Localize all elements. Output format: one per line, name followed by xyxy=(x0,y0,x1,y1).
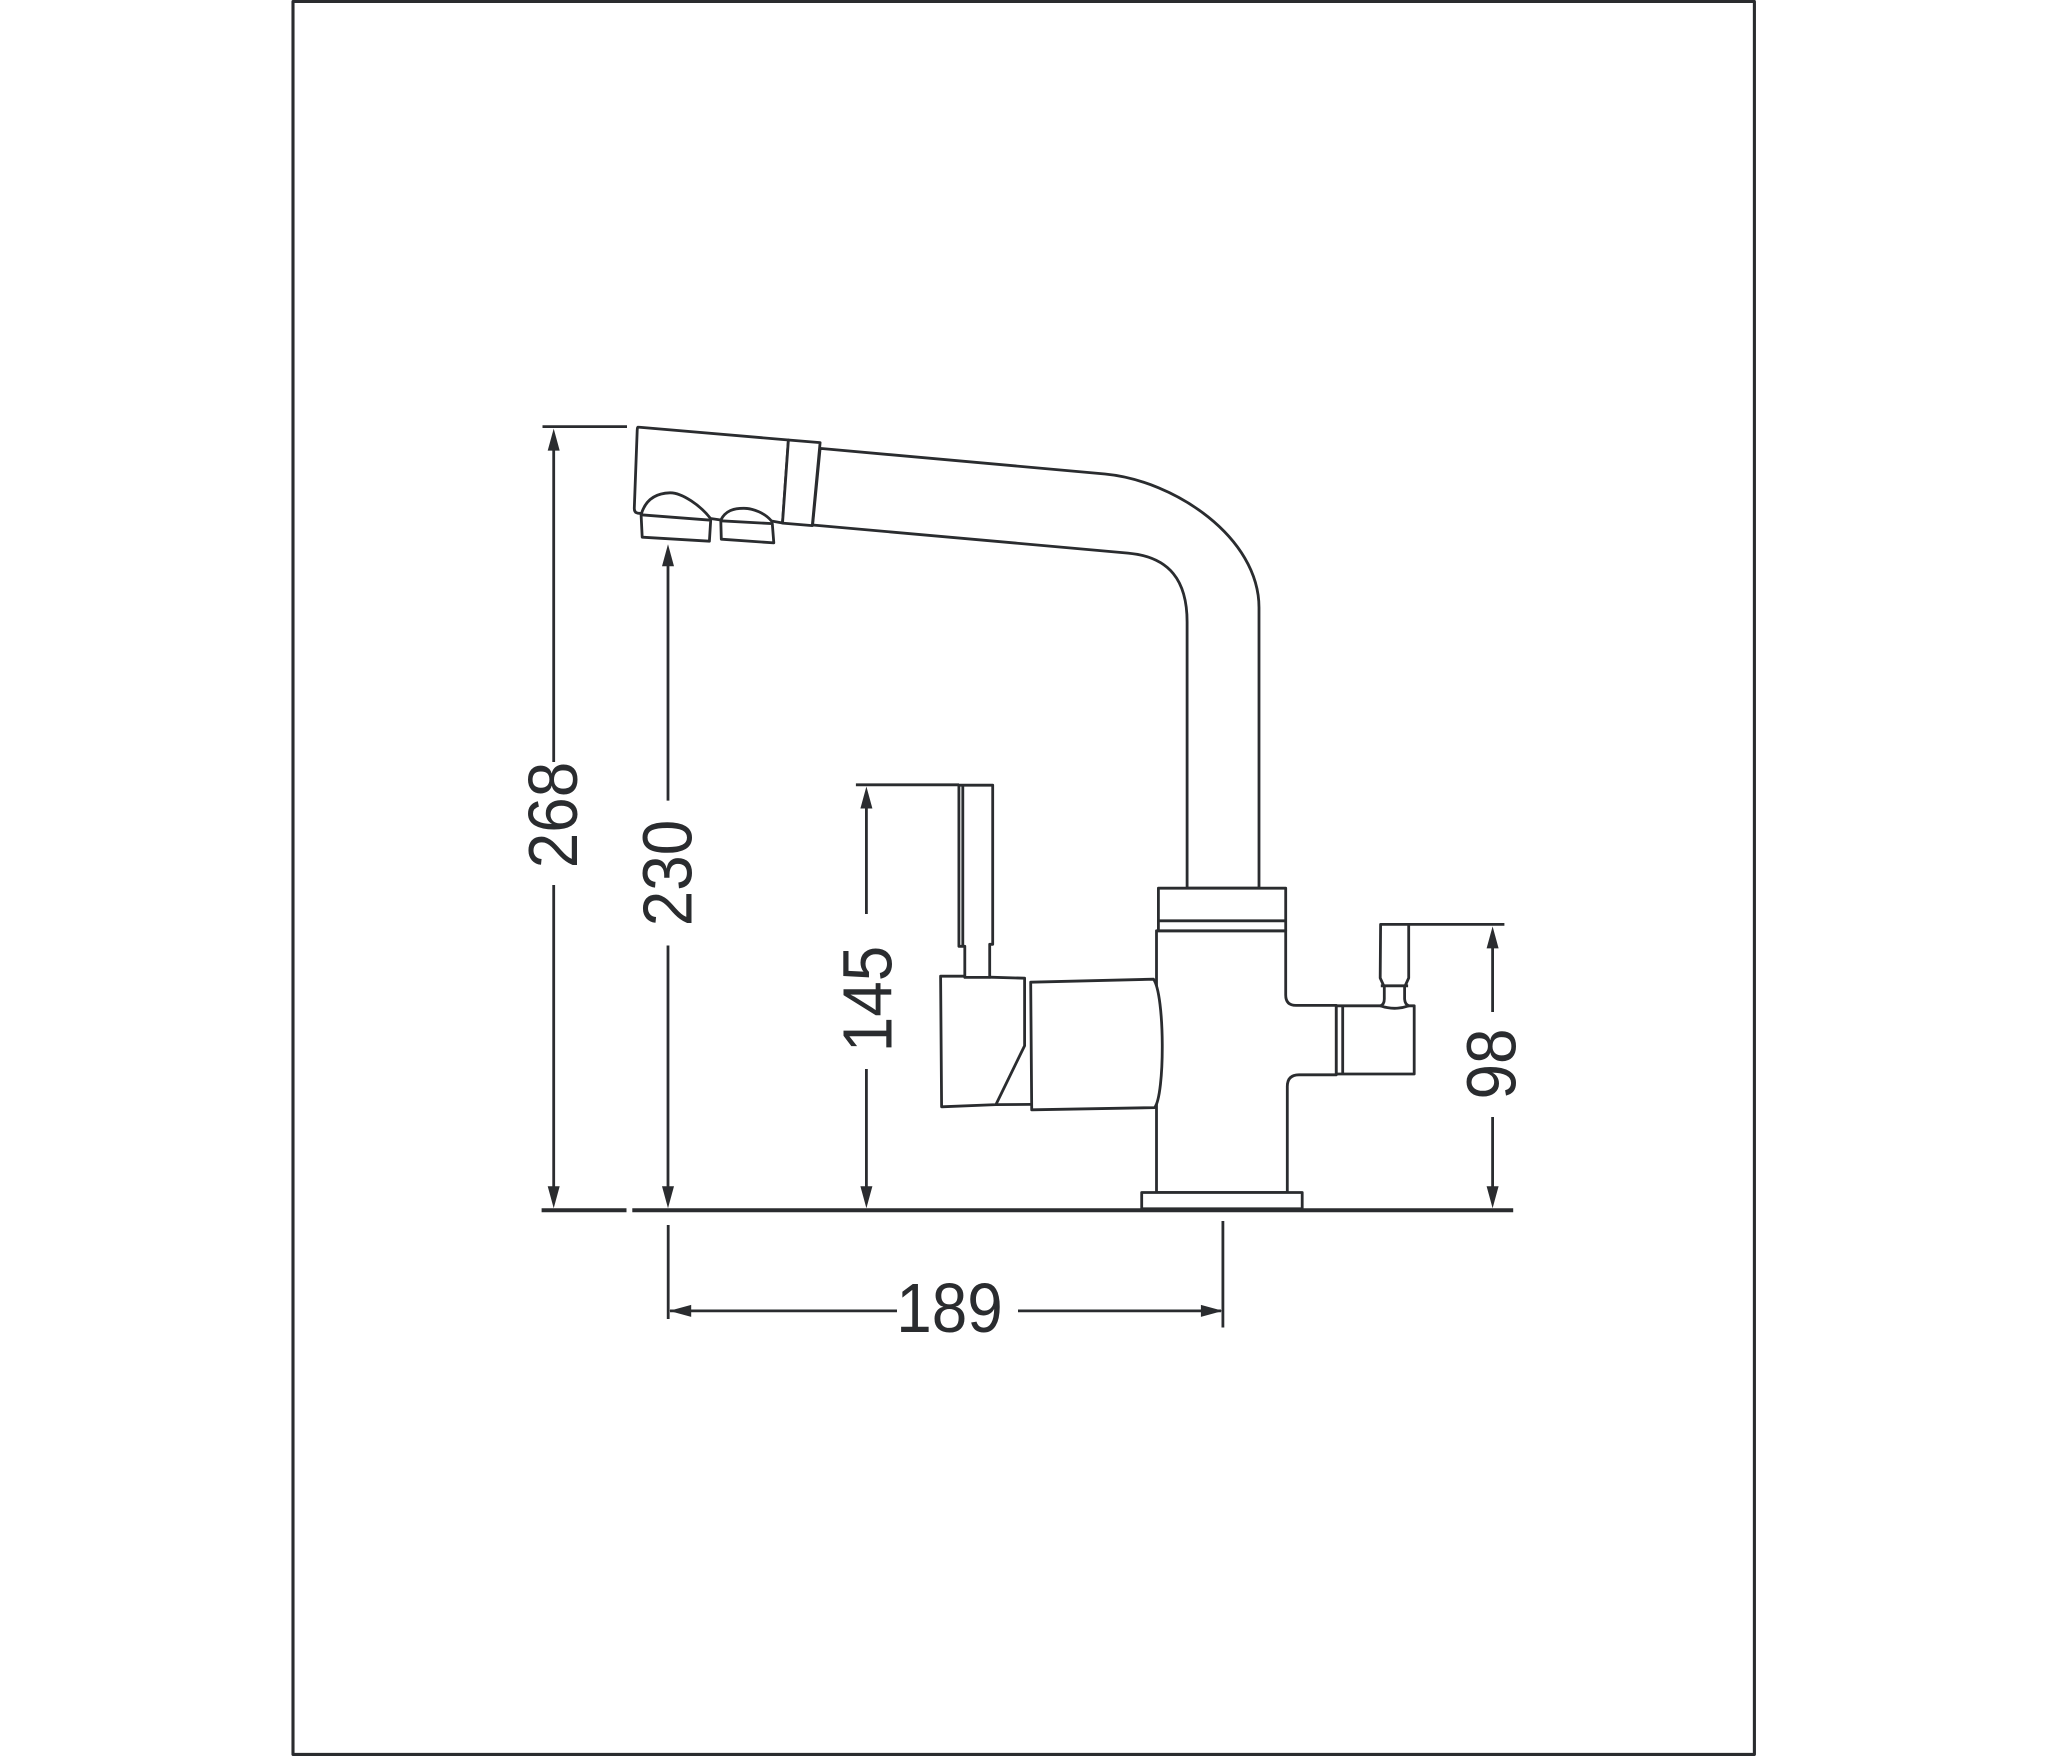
svg-text:145: 145 xyxy=(829,946,907,1053)
svg-text:268: 268 xyxy=(514,762,592,869)
svg-text:230: 230 xyxy=(629,820,707,927)
svg-text:98: 98 xyxy=(1453,1029,1531,1100)
svg-text:189: 189 xyxy=(896,1269,1003,1347)
